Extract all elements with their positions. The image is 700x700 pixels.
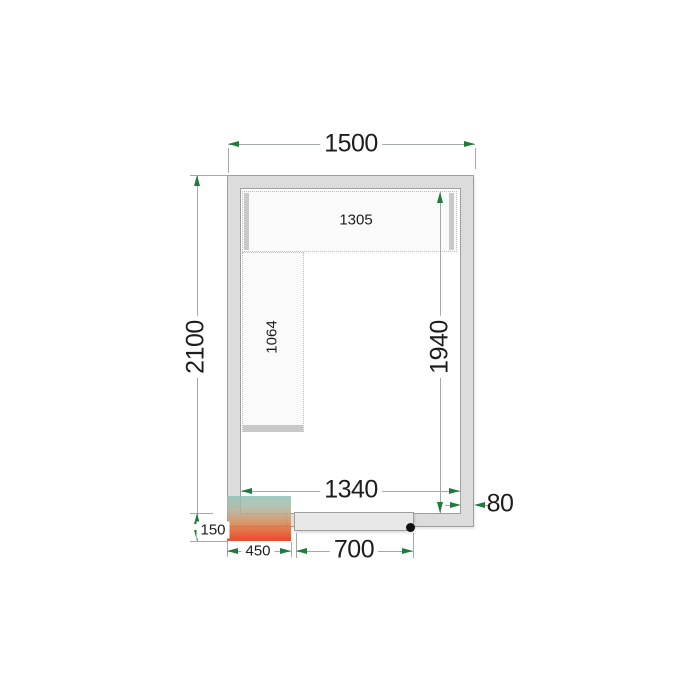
top-shelf-right-bracket bbox=[449, 193, 454, 250]
dim-arrow-left-icon bbox=[228, 141, 239, 147]
top-shelf-label: 1305 bbox=[335, 212, 376, 229]
dim-arrow-right-icon bbox=[449, 488, 460, 494]
dim-arrow-right-icon bbox=[450, 502, 461, 508]
room-width-label: 1500 bbox=[320, 131, 382, 158]
dim-arrow-left-icon bbox=[227, 548, 238, 554]
wall-thickness-label: 80 bbox=[483, 491, 518, 518]
inner-depth-label: 1940 bbox=[427, 316, 454, 378]
unit-width-ext-right bbox=[291, 542, 292, 557]
left-shelf-bottom-bracket bbox=[243, 425, 303, 432]
left-shelf-label: 1064 bbox=[264, 316, 281, 357]
dim-arrow-left-icon bbox=[296, 548, 307, 554]
dim-arrow-left-icon bbox=[241, 488, 252, 494]
door-width-label: 700 bbox=[330, 537, 378, 564]
inner-width-label: 1340 bbox=[320, 477, 382, 504]
dim-arrow-right-icon bbox=[464, 141, 475, 147]
room-width-ext-right bbox=[475, 148, 476, 169]
unit-offset-label: 150 bbox=[196, 522, 229, 539]
door-panel bbox=[294, 512, 414, 531]
room-width-ext-left bbox=[228, 148, 229, 173]
dim-arrow-right-icon bbox=[402, 548, 413, 554]
dim-arrow-down-icon bbox=[437, 502, 443, 513]
cooling-unit-heatmap bbox=[227, 496, 291, 541]
unit-width-label: 450 bbox=[241, 543, 274, 560]
door-width-ext-right bbox=[413, 533, 414, 558]
floor-plan-canvas: 1500 2100 1940 1340 700 80 1305 1064 450… bbox=[0, 0, 700, 700]
top-shelf-left-bracket bbox=[244, 193, 249, 250]
unit-offset-ext-bottom bbox=[190, 541, 228, 542]
door-width-ext-left bbox=[296, 533, 297, 558]
dim-arrow-right-icon bbox=[280, 548, 291, 554]
dim-arrow-up-icon bbox=[437, 192, 443, 203]
door-handle-dot bbox=[406, 523, 415, 532]
room-depth-label: 2100 bbox=[183, 316, 210, 378]
dim-arrow-up-icon bbox=[194, 175, 200, 186]
